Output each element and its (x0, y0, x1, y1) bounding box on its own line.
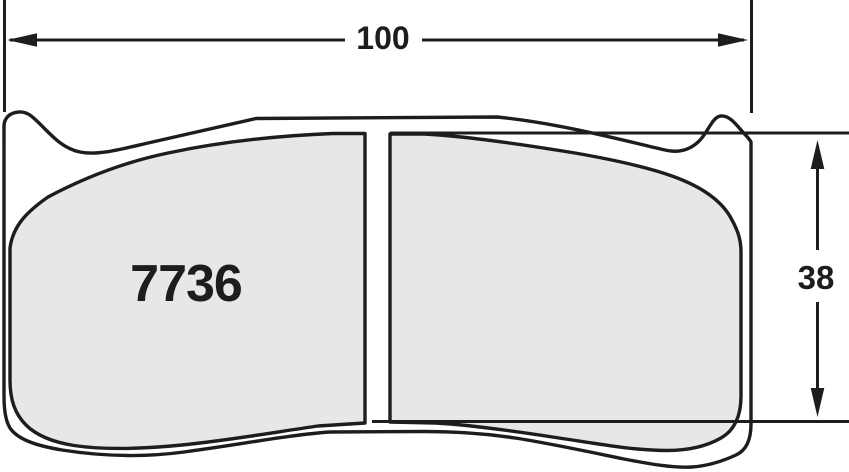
height-dimension-label: 38 (798, 259, 835, 296)
friction-pad-right (390, 134, 741, 451)
width-dimension: 100 (5, 0, 752, 113)
height-arrowhead-down-icon (811, 388, 825, 417)
width-dimension-label: 100 (356, 20, 409, 56)
width-arrowhead-left-icon (7, 33, 37, 47)
brake-pad-technical-drawing: 7736 100 38 (0, 0, 849, 472)
drawing-svg: 7736 100 38 (0, 0, 849, 472)
part-number-label: 7736 (130, 255, 242, 313)
width-arrowhead-right-icon (718, 33, 748, 47)
height-arrowhead-up-icon (811, 140, 825, 169)
